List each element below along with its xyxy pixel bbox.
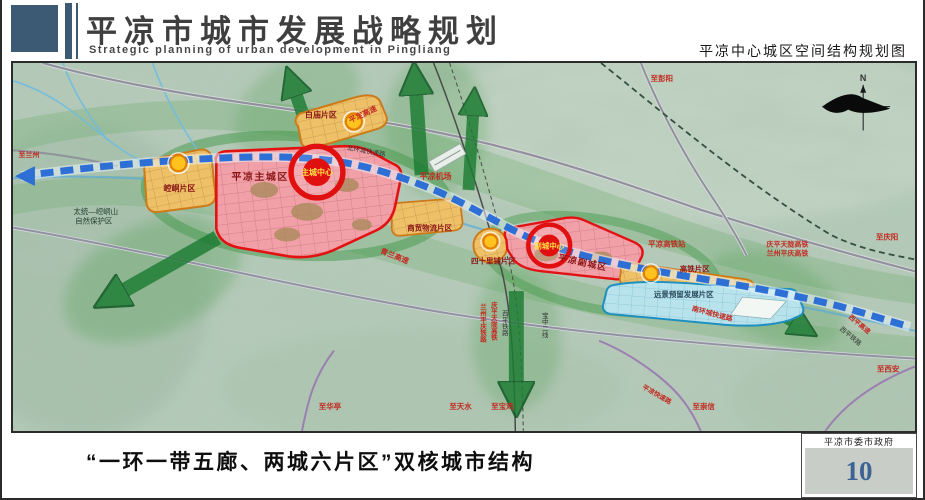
label-sub-center: 副城中心 xyxy=(534,241,564,251)
label-baimiao-district: 白庙片区 xyxy=(305,110,337,120)
label-main-center: 主城中心 xyxy=(301,167,333,177)
label-hsr-station: 平凉高铁站 xyxy=(648,239,686,249)
label-rail-qptl-vertical: 庆平天陇高铁 xyxy=(490,300,498,341)
map-title: 平凉中心城区空间结构规划图 xyxy=(699,41,907,61)
label-airport: 平凉机场 xyxy=(420,171,452,181)
label-rail-baozhong-vertical: 宝中二线 xyxy=(541,311,548,338)
label-lzpq-hsr: 兰州平庆高铁 xyxy=(767,248,809,257)
label-to-huating: 至华亭 xyxy=(319,401,342,411)
label-rail-xiping-vertical: 西平铁路 xyxy=(501,310,508,337)
label-nature-reserve-1: 太统—崆峒山 xyxy=(73,206,118,216)
label-to-lanzhou: 至兰州 xyxy=(18,150,39,159)
planning-page: 平凉市城市发展战略规划 Strategic planning of urban … xyxy=(0,0,925,500)
label-to-pengyang: 至彭阳 xyxy=(651,73,673,83)
label-to-qingyang: 至庆阳 xyxy=(876,232,898,242)
page-number-box: 平凉市委市政府 10 xyxy=(801,433,917,498)
label-kongtong-district: 崆峒片区 xyxy=(164,183,196,193)
label-main-city: 平凉主城区 xyxy=(232,170,289,183)
label-trade-district: 商贸物流片区 xyxy=(407,223,452,233)
label-qptl-hsr: 庆平天陇高铁 xyxy=(766,240,809,249)
compass-n-label: N xyxy=(860,73,866,83)
label-to-chongxin: 至崇信 xyxy=(693,401,716,411)
label-future-zone: 远景预留发展片区 xyxy=(654,289,714,299)
label-to-baoji: 至宝鸡 xyxy=(491,401,514,411)
label-to-xian: 至西安 xyxy=(877,364,900,374)
gov-label: 平凉市委市政府 xyxy=(802,435,916,448)
structure-slogan: “一环一带五廊、两城六片区”双核城市结构 xyxy=(86,446,535,476)
structure-map: N 白庙片区 崆峒片区 平凉主城区 主城中心 商贸物流片区 四十里铺片区 平凉副… xyxy=(13,63,915,431)
label-hsr-zone: 高铁片区 xyxy=(680,263,710,273)
page-number: 10 xyxy=(805,448,913,494)
label-nature-reserve-2: 自然保护区 xyxy=(75,216,113,226)
header-logo-square xyxy=(11,5,58,52)
map-canvas: N 白庙片区 崆峒片区 平凉主城区 主城中心 商贸物流片区 四十里铺片区 平凉副… xyxy=(11,61,917,433)
label-sishilipu-district: 四十里铺片区 xyxy=(471,255,516,265)
page-subtitle-en: Strategic planning of urban development … xyxy=(89,44,452,56)
header-accent-bar xyxy=(65,3,72,59)
header-accent-line xyxy=(76,3,78,59)
label-to-tianshui: 至天水 xyxy=(449,401,472,411)
label-rail-lzpq-vertical: 兰州平庆铁路 xyxy=(479,302,487,343)
